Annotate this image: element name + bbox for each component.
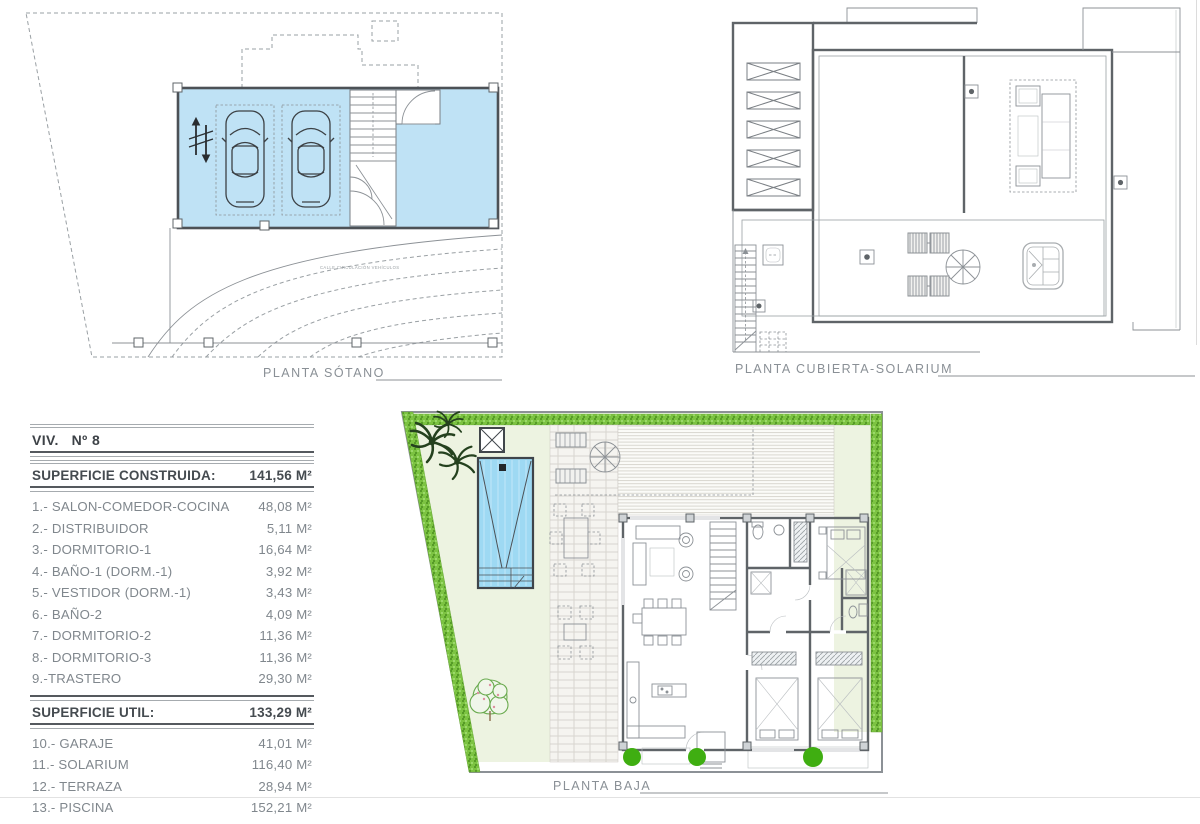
landing-door [396,90,440,124]
room-area-value: 152,21 M² [251,797,312,819]
room-area-value: 5,11 M² [267,518,312,540]
constructed-surface-label: SUPERFICIE CONSTRUIDA: [32,468,216,483]
room-area-value: 16,64 M² [258,539,312,561]
constructed-surface-value: 141,56 M² [249,468,312,483]
skylights [747,63,800,196]
room-label: 13.- PISCINA [32,797,114,819]
wood-deck [618,425,834,515]
table-row: 7.- DORMITORIO-2 11,36 M² [30,625,314,647]
retaining-wall [112,228,502,347]
room-label: 8.- DORMITORIO-3 [32,647,151,669]
surface-table: VIV. Nº 8 SUPERFICIE CONSTRUIDA: 141,56 … [30,424,314,824]
solarium-staircase [735,245,786,352]
exterior-list: 10.- GARAJE 41,01 M² 11.- SOLARIUM 116,4… [30,729,314,824]
room-area-value: 48,08 M² [258,496,312,518]
useful-surface-row: SUPERFICIE UTIL: 133,29 M² [30,701,314,723]
table-row: 5.- VESTIDOR (DORM.-1) 3,43 M² [30,582,314,604]
road-label: CALLE CIRCULACIÓN VEHÍCULOS [320,265,399,270]
outdoor-shower [763,245,783,265]
room-area-value: 11,36 M² [259,625,312,647]
plan-cubierta: PLANTA CUBIERTA-SOLARIUM [690,0,1200,385]
plan-label: PLANTA BAJA [553,779,651,793]
outdoor-shower [480,428,504,452]
room-area-value: 3,92 M² [266,561,312,583]
sheet-edge [0,797,1200,798]
pergola-grid [760,332,786,352]
room-area-value: 11,36 M² [259,647,312,669]
table-row: 2.- DISTRIBUIDOR 5,11 M² [30,518,314,540]
room-label: 12.- TERRAZA [32,776,122,798]
room-label: 1.- SALON-COMEDOR-COCINA [32,496,230,518]
plan-title: PLANTA SÓTANO [263,365,502,380]
plan-baja-drawing: PLANTA BAJA [390,400,890,800]
table-row: 11.- SOLARIUM 116,40 M² [30,754,314,776]
garage [173,83,498,230]
room-area-value: 41,01 M² [258,733,312,755]
divider [30,451,314,457]
house-footprint-outline [242,21,418,88]
useful-surface-label: SUPERFICIE UTIL: [32,705,154,720]
spiral-stair [590,442,620,472]
plan-baja: PLANTA BAJA [390,400,890,800]
table-row: 13.- PISCINA 152,21 M² [30,797,314,819]
room-label: 5.- VESTIDOR (DORM.-1) [32,582,191,604]
table-row: 4.- BAÑO-1 (DORM.-1) 3,92 M² [30,561,314,583]
plan-cubierta-drawing: PLANTA CUBIERTA-SOLARIUM [690,0,1200,385]
sofa-set [1010,80,1076,192]
room-area-value: 3,43 M² [266,582,312,604]
room-label: 6.- BAÑO-2 [32,604,102,626]
room-label: 7.- DORMITORIO-2 [32,625,151,647]
useful-surface-value: 133,29 M² [249,705,312,720]
plan-label: PLANTA CUBIERTA-SOLARIUM [735,362,953,376]
room-label: 10.- GARAJE [32,733,113,755]
table-row: 6.- BAÑO-2 4,09 M² [30,604,314,626]
table-row: 9.-TRASTERO 29,30 M² [30,668,314,690]
constructed-surface-row: SUPERFICIE CONSTRUIDA: 141,56 M² [30,464,314,486]
plan-title: PLANTA BAJA [553,779,888,793]
table-row: 3.- DORMITORIO-1 16,64 M² [30,539,314,561]
table-row: 12.- TERRAZA 28,94 M² [30,776,314,798]
driveway: CALLE CIRCULACIÓN VEHÍCULOS [148,235,502,357]
room-label: 3.- DORMITORIO-1 [32,539,151,561]
room-area-value: 116,40 M² [252,754,312,776]
sheet-edge [1196,0,1197,345]
swimming-pool [478,458,533,588]
room-area-value: 4,09 M² [266,604,312,626]
basement-staircase [350,90,396,226]
room-label: 2.- DISTRIBUIDOR [32,518,149,540]
plan-title: PLANTA CUBIERTA-SOLARIUM [735,362,1195,376]
room-label: 9.-TRASTERO [32,668,121,690]
table-row: 1.- SALON-COMEDOR-COCINA 48,08 M² [30,496,314,518]
parasol [946,250,980,284]
room-list: 1.- SALON-COMEDOR-COCINA 48,08 M² 2.- DI… [30,492,314,695]
pool-drain [499,464,506,471]
plan-label: PLANTA SÓTANO [263,365,385,380]
jacuzzi [1023,243,1063,289]
table-row: 10.- GARAJE 41,01 M² [30,733,314,755]
table-row: 8.- DORMITORIO-3 11,36 M² [30,647,314,669]
plan-sotano: CALLE CIRCULACIÓN VEHÍCULOS PLANTA SÓTAN… [20,5,520,390]
room-label: 11.- SOLARIUM [32,754,129,776]
dwelling-title: VIV. Nº 8 [30,428,314,451]
plan-sotano-drawing: CALLE CIRCULACIÓN VEHÍCULOS PLANTA SÓTAN… [20,5,520,390]
sun-loungers [908,233,949,296]
room-label: 4.- BAÑO-1 (DORM.-1) [32,561,172,583]
room-area-value: 28,94 M² [258,776,312,798]
room-area-value: 29,30 M² [258,668,312,690]
